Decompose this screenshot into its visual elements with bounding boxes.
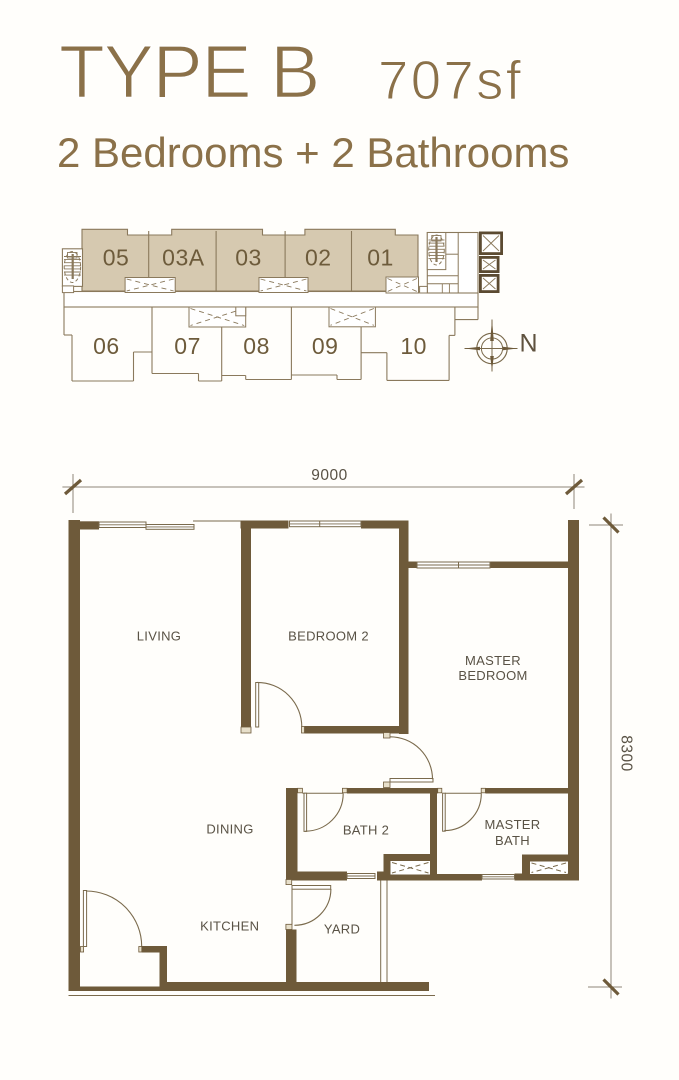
svg-text:8300: 8300 (618, 735, 635, 771)
svg-text:07: 07 (174, 333, 201, 359)
svg-text:02: 02 (305, 245, 332, 271)
svg-text:01: 01 (367, 245, 394, 271)
svg-text:LIVING: LIVING (137, 629, 181, 644)
svg-text:06: 06 (93, 333, 120, 359)
svg-text:08: 08 (243, 333, 270, 359)
svg-text:9000: 9000 (311, 467, 347, 484)
svg-text:BEDROOM 2: BEDROOM 2 (288, 629, 369, 644)
svg-text:MASTER: MASTER (465, 653, 521, 668)
svg-text:03A: 03A (162, 245, 205, 271)
svg-text:MASTER: MASTER (485, 817, 541, 832)
svg-text:TYPE B: TYPE B (59, 30, 319, 114)
svg-text:09: 09 (312, 333, 339, 359)
svg-text:707sf: 707sf (378, 50, 523, 111)
svg-text:N: N (519, 330, 537, 358)
svg-text:YARD: YARD (324, 922, 360, 937)
svg-text:2 Bedrooms + 2 Bathrooms: 2 Bedrooms + 2 Bathrooms (57, 129, 569, 176)
svg-text:BATH 2: BATH 2 (343, 823, 389, 838)
svg-text:10: 10 (400, 333, 427, 359)
svg-text:BEDROOM: BEDROOM (458, 668, 527, 683)
svg-text:BATH: BATH (495, 833, 530, 848)
svg-text:03: 03 (235, 245, 262, 271)
svg-text:KITCHEN: KITCHEN (200, 919, 259, 934)
svg-text:05: 05 (103, 245, 130, 271)
svg-text:DINING: DINING (206, 822, 253, 837)
